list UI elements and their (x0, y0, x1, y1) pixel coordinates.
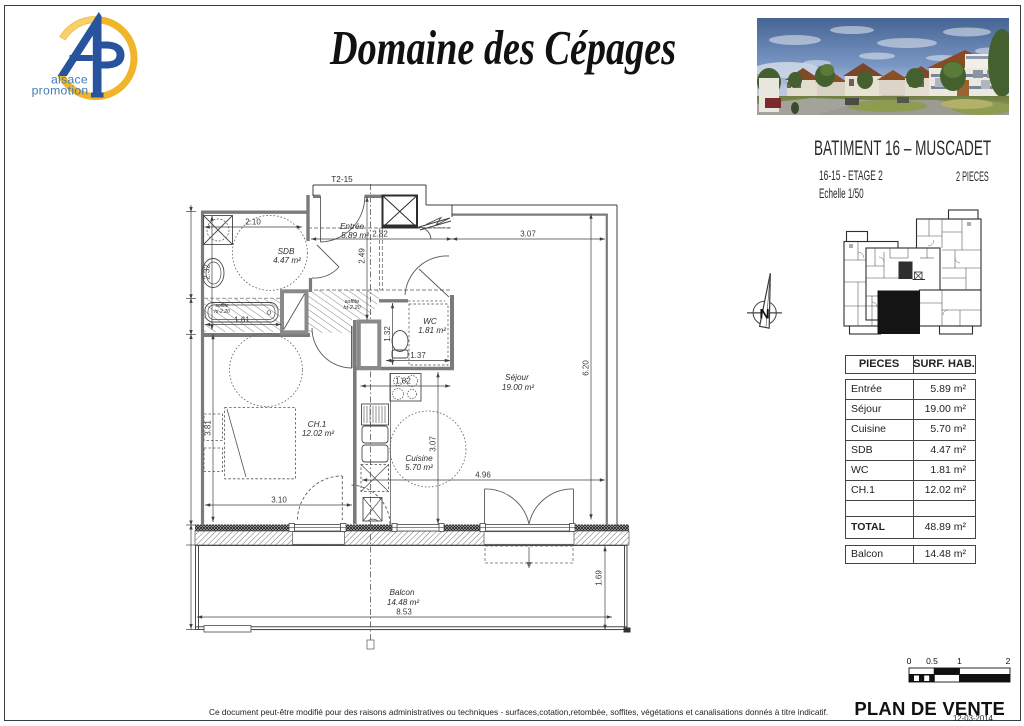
svg-text:Entrée: Entrée (340, 222, 365, 231)
svg-text:2.49: 2.49 (358, 248, 367, 264)
svg-text:ht-2.20: ht-2.20 (214, 309, 230, 315)
svg-text:0.5: 0.5 (926, 656, 938, 666)
svg-text:3.81: 3.81 (204, 420, 213, 436)
svg-text:WC: WC (423, 317, 437, 326)
svg-text:T2-15: T2-15 (331, 175, 353, 184)
svg-text:ht-2.20: ht-2.20 (343, 305, 361, 311)
svg-text:CH.1: CH.1 (308, 420, 327, 429)
svg-text:8.53: 8.53 (396, 608, 412, 617)
svg-text:3.07: 3.07 (520, 230, 536, 239)
svg-text:5.70 m²: 5.70 m² (405, 463, 433, 472)
svg-text:1: 1 (957, 656, 962, 666)
svg-text:6.20: 6.20 (582, 360, 591, 376)
svg-text:N: N (759, 306, 769, 322)
svg-text:1.69: 1.69 (595, 570, 604, 586)
svg-text:Séjour: Séjour (505, 373, 529, 382)
svg-text:3.10: 3.10 (271, 496, 287, 505)
svg-text:5.89 m²: 5.89 m² (341, 231, 369, 240)
svg-text:1.82: 1.82 (395, 377, 411, 386)
svg-text:12.02 m²: 12.02 m² (302, 429, 335, 438)
svg-text:2.82: 2.82 (372, 230, 388, 239)
svg-text:Cuisine: Cuisine (405, 454, 433, 463)
svg-text:2: 2 (1006, 656, 1011, 666)
svg-text:2.32: 2.32 (203, 264, 212, 280)
svg-text:3.07: 3.07 (429, 436, 438, 452)
svg-text:2.10: 2.10 (245, 218, 261, 227)
svg-text:1.81 m²: 1.81 m² (418, 326, 446, 335)
svg-text:4.47 m²: 4.47 m² (273, 256, 301, 265)
svg-text:SDB: SDB (278, 247, 295, 256)
svg-text:0: 0 (907, 656, 912, 666)
svg-text:14.48 m²: 14.48 m² (387, 598, 420, 607)
svg-text:4.96: 4.96 (475, 471, 491, 480)
svg-text:1.37: 1.37 (410, 351, 426, 360)
svg-text:19.00 m²: 19.00 m² (502, 383, 535, 392)
svg-text:1.61: 1.61 (234, 316, 250, 325)
svg-text:Balcon: Balcon (389, 588, 414, 597)
svg-text:1.32: 1.32 (383, 326, 392, 342)
